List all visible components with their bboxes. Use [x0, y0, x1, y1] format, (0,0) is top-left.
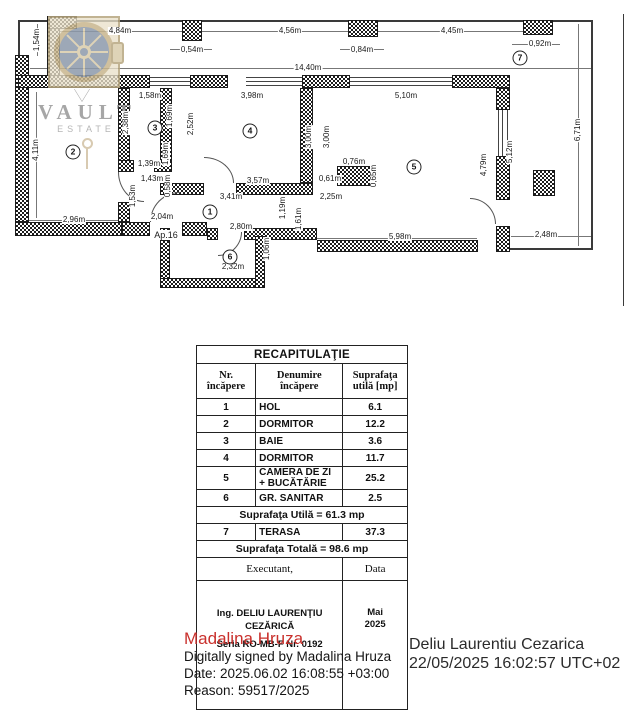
brand-subtitle: ESTATE — [38, 124, 134, 134]
room-number-cell: 7 — [197, 524, 256, 541]
grand-total: Suprafaţa Totală = 98.6 mp — [197, 541, 408, 558]
room-number-cell: 6 — [197, 490, 256, 507]
wall-pillar — [348, 20, 378, 37]
document-page: Ap.16 VAULT ESTATE 4,84m0,54m4,56m0,84m4… — [0, 0, 629, 720]
dimension-label: 4,11m — [32, 138, 40, 162]
wall-segment — [452, 75, 510, 88]
dimension-label: 2,52m — [187, 112, 195, 136]
dimension-label: 3,98m — [240, 92, 264, 100]
room-area-cell: 25.2 — [343, 467, 408, 490]
room-name-cell: GR. SANITAR — [256, 490, 343, 507]
room-area-cell: 37.3 — [343, 524, 408, 541]
wall-pillar — [523, 20, 553, 35]
wheel-hub — [77, 45, 91, 59]
dimension-label: 5,12m — [506, 140, 514, 164]
apartment-door-label: Ap.16 — [153, 230, 179, 240]
signer-name: Madalina Hruza — [184, 629, 391, 648]
dimension-label: 2,32m — [221, 263, 245, 271]
dimension-label: 3,41m — [219, 193, 243, 201]
dimension-label: 1,61m — [295, 207, 303, 231]
dimension-label: 1,19m — [279, 196, 287, 220]
dimension-label: 1,58m — [138, 92, 162, 100]
room-number-badge: 7 — [513, 51, 528, 66]
room-number-badge: 4 — [243, 124, 258, 139]
dimension-label: 3,00m — [305, 125, 313, 149]
room-area-cell: 12.2 — [343, 416, 408, 433]
dimension-label: 0,84m — [350, 46, 374, 54]
wall-segment — [496, 226, 510, 252]
window-symbol — [150, 77, 190, 86]
room-area-cell: 2.5 — [343, 490, 408, 507]
dimension-label: 1,06m — [263, 237, 271, 261]
brand-name: VAULT — [38, 100, 134, 125]
data-label: Data — [343, 558, 408, 581]
room-number-badge: 5 — [407, 160, 422, 175]
dimension-label: 0,65m — [370, 164, 378, 188]
dimension-label: 2,04m — [150, 213, 174, 221]
wall-segment — [160, 278, 265, 288]
terrace-boundary-line — [18, 20, 20, 58]
dimension-label: 1,54m — [33, 28, 41, 52]
terrace-boundary-line — [510, 248, 593, 250]
date-value: Mai 2025 — [360, 607, 390, 631]
sheet-edge-line — [623, 14, 624, 306]
door-arc — [204, 157, 234, 183]
room-name-cell: HOL — [256, 399, 343, 416]
room-number-cell: 5 — [197, 467, 256, 490]
room-name-cell: DORMITOR — [256, 450, 343, 467]
room-name-cell: TERASA — [256, 524, 343, 541]
room-number-badge: 3 — [148, 121, 163, 136]
dimension-label: 3,00m — [323, 125, 331, 149]
room-name-cell: CAMERA DE ZI + BUCĂTĂRIE — [256, 467, 343, 490]
wall-segment — [15, 222, 122, 236]
dimension-label: 2,38m — [122, 111, 130, 135]
stamp-name: Deliu Laurentiu Cezarica — [409, 635, 629, 654]
table-row: 5 CAMERA DE ZI + BUCĂTĂRIE 25.2 — [197, 467, 408, 490]
dimension-label: 1,53m — [129, 184, 137, 208]
wall-segment — [302, 75, 350, 88]
dimension-label: 2,48m — [534, 231, 558, 239]
room-number-cell: 2 — [197, 416, 256, 433]
table-row: 7 TERASA 37.3 — [197, 524, 408, 541]
wall-pillar — [182, 20, 202, 41]
room-name-cell: BAIE — [256, 433, 343, 450]
dimension-label: 5,98m — [388, 233, 412, 241]
wall-segment — [207, 228, 218, 240]
dimension-label: 14,40m — [294, 64, 323, 72]
dimension-label: 3,57m — [246, 177, 270, 185]
column-header: Suprafaţa utilă [mp] — [343, 364, 408, 399]
vault-wheel-icon — [54, 22, 114, 82]
table-row: 1 HOL 6.1 — [197, 399, 408, 416]
terrace-boundary-line — [591, 20, 593, 250]
table-row: 6 GR. SANITAR 2.5 — [197, 490, 408, 507]
dimension-label: 4,84m — [108, 27, 132, 35]
dimension-label: 0,61m — [318, 175, 342, 183]
room-area-cell: 3.6 — [343, 433, 408, 450]
room-number-badge: 6 — [223, 250, 238, 265]
dimension-label: 4,56m — [278, 27, 302, 35]
table-row: 4 DORMITOR 11.7 — [197, 450, 408, 467]
wall-segment — [190, 75, 228, 88]
vault-handle-icon — [111, 42, 124, 64]
wall-segment — [317, 240, 478, 252]
table-row: 2 DORMITOR 12.2 — [197, 416, 408, 433]
window-symbol — [350, 77, 452, 86]
table-title: RECAPITULAŢIE — [197, 346, 408, 364]
executant-label: Executant, — [197, 558, 343, 581]
wall-segment — [496, 88, 510, 110]
dimension-label: 1,39m — [137, 160, 161, 168]
vault-estate-logo: VAULT ESTATE — [38, 12, 134, 172]
floor-plan: Ap.16 VAULT ESTATE 4,84m0,54m4,56m0,84m4… — [0, 0, 629, 340]
dimension-label: 0,54m — [180, 46, 204, 54]
dimension-label: 0,76m — [342, 158, 366, 166]
dimension-label: 0,92m — [528, 40, 552, 48]
key-icon — [82, 138, 93, 149]
door-arc — [470, 198, 496, 224]
wall-segment — [122, 222, 150, 236]
dimension-line — [202, 31, 348, 32]
dimension-label: 5,10m — [394, 92, 418, 100]
column-header: Denumire încăpere — [256, 364, 343, 399]
column-header: Nr. încăpere — [197, 364, 256, 399]
table-row: 3 BAIE 3.6 — [197, 433, 408, 450]
dimension-label: 4,79m — [480, 153, 488, 177]
dimension-label: 1,69m — [166, 104, 174, 128]
dimension-label: 2,25m — [319, 193, 343, 201]
dimension-label: 6,71m — [574, 118, 582, 142]
room-number-badge: 2 — [66, 145, 81, 160]
useful-area-total: Suprafaţa Utilă = 61.3 mp — [197, 507, 408, 524]
stamp-datetime: 22/05/2025 16:02:57 UTC+02 — [409, 654, 629, 673]
dimension-label: 1,69m — [162, 142, 170, 166]
signature-reason-line: Reason: 59517/2025 — [184, 682, 391, 699]
room-number-cell: 1 — [197, 399, 256, 416]
dimension-label: 1,43m — [140, 175, 164, 183]
room-number-cell: 3 — [197, 433, 256, 450]
room-area-cell: 11.7 — [343, 450, 408, 467]
wall-pillar — [533, 170, 555, 196]
room-name-cell: DORMITOR — [256, 416, 343, 433]
window-symbol — [246, 77, 302, 86]
wall-segment — [182, 222, 207, 236]
dimension-label: 2,96m — [62, 216, 86, 224]
room-area-cell: 6.1 — [343, 399, 408, 416]
right-stamp-block: Deliu Laurentiu Cezarica 22/05/2025 16:0… — [409, 635, 629, 673]
signature-line: Digitally signed by Madalina Hruza — [184, 648, 391, 665]
dimension-label: 2,80m — [229, 223, 253, 231]
digital-signature-block: Madalina Hruza Digitally signed by Madal… — [184, 629, 391, 699]
signature-date-line: Date: 2025.06.02 16:08:55 +03:00 — [184, 665, 391, 682]
dimension-label: 0,58m — [164, 174, 172, 198]
wall-segment — [160, 240, 170, 280]
dimension-label: 4,45m — [440, 27, 464, 35]
room-number-badge: 1 — [203, 205, 218, 220]
room-number-cell: 4 — [197, 450, 256, 467]
